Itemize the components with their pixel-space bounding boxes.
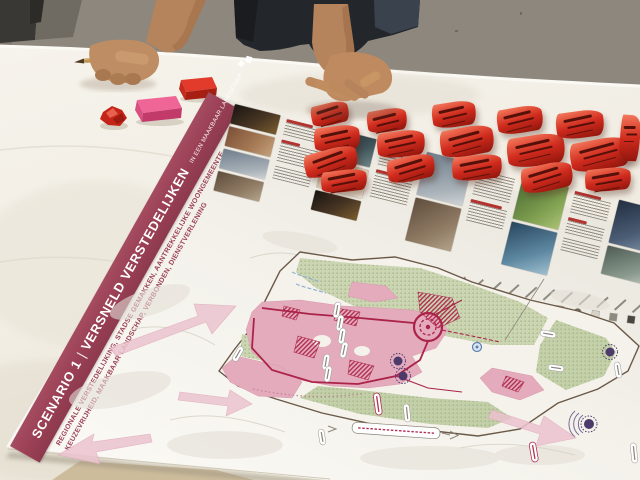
legend-swatch	[413, 267, 425, 298]
sticky-pad-pink	[135, 96, 184, 126]
legend-swatch	[573, 289, 585, 320]
kraft-paper-under-poster	[52, 461, 254, 480]
poster-logo-icon	[235, 51, 255, 72]
dotted-connection-line	[253, 389, 364, 396]
sticky-note	[365, 106, 408, 136]
water-marks	[292, 272, 326, 293]
title-separator: |	[73, 350, 88, 360]
sticky-note	[618, 114, 640, 161]
wall-mark	[520, 12, 522, 15]
legend-swatch	[627, 297, 639, 328]
legend-swatch	[591, 292, 603, 323]
station-label-pills	[231, 302, 638, 464]
reference-photo	[501, 221, 557, 275]
legend-swatch	[502, 279, 514, 310]
legend-swatch	[395, 264, 407, 295]
wall-mark	[455, 30, 458, 32]
infrastructure-routes	[252, 300, 500, 392]
sticky-note	[568, 134, 633, 176]
reference-photo	[601, 245, 640, 285]
legend-swatch	[537, 284, 549, 315]
table-edge-highlight	[0, 46, 640, 86]
purple-node-marker	[569, 411, 597, 437]
legend-swatch	[430, 269, 442, 300]
poster-title-banner: SCENARIO 1 | VERSNELD VERSTEDELIJKEN IN …	[10, 92, 238, 463]
sticky-note	[430, 99, 477, 131]
reference-photo	[513, 176, 569, 230]
urban-open-gaps	[313, 335, 370, 356]
ring-road-hub	[414, 313, 442, 341]
sticky-note	[584, 166, 632, 194]
legend-swatch	[555, 287, 567, 318]
legend-swatch	[448, 272, 460, 303]
sticky-note	[495, 103, 545, 137]
sticky-note	[505, 131, 567, 171]
purple-node-marker	[396, 369, 411, 384]
legend-swatch	[520, 282, 532, 313]
reference-photo	[609, 200, 640, 254]
hand-centre	[304, 4, 398, 119]
crumpled-red-note	[100, 106, 128, 130]
hand-left	[74, 0, 206, 91]
purple-node-marker	[391, 354, 406, 369]
wall-shadow-edge	[0, 0, 12, 60]
legend-swatch	[484, 277, 496, 308]
legend-swatch	[359, 259, 371, 290]
legend-swatch	[609, 294, 621, 325]
corridor-label	[328, 422, 458, 439]
legend-swatch	[377, 262, 389, 293]
keywords-line-1: REGIONALE VERSTEDELIJKING, STADSE GEMAKK…	[54, 117, 246, 448]
workshop-scene: SCENARIO 1 | VERSNELD VERSTEDELIJKEN IN …	[0, 0, 640, 480]
wall	[0, 0, 640, 95]
reference-photo	[405, 198, 461, 252]
sticky-note	[438, 122, 497, 161]
person-left	[0, 0, 82, 43]
pencil	[74, 54, 148, 64]
reference-photo	[416, 152, 472, 206]
sticky-note	[554, 108, 605, 141]
node-markers	[391, 343, 618, 438]
purple-node-marker	[603, 345, 618, 360]
cloth-shading	[240, 73, 480, 117]
legend-swatch	[341, 257, 353, 288]
legend-swatch	[466, 274, 478, 305]
blue-node-marker	[473, 343, 482, 352]
person-centre	[234, 0, 420, 60]
